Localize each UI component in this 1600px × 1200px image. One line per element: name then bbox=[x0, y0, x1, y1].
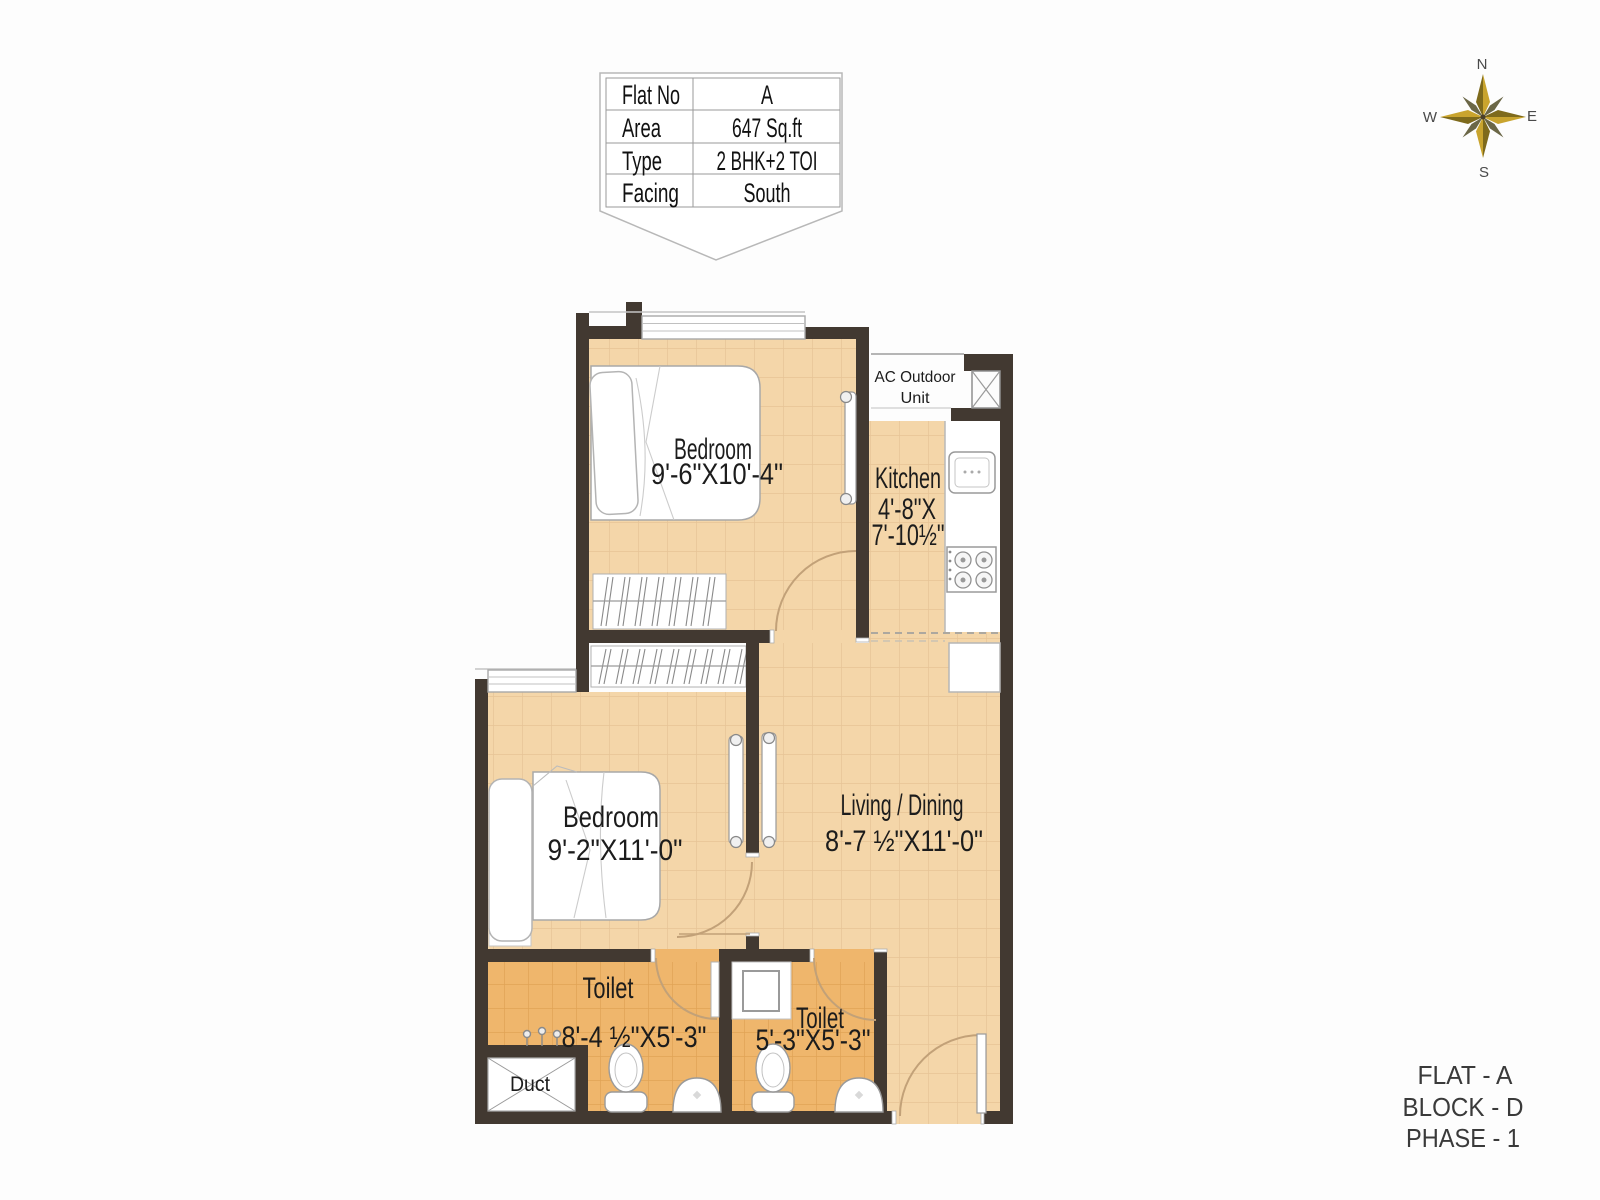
svg-text:Duct: Duct bbox=[510, 1073, 550, 1096]
svg-text:Toilet: Toilet bbox=[583, 972, 634, 1005]
svg-text:A: A bbox=[761, 80, 773, 110]
svg-text:7'-10½": 7'-10½" bbox=[872, 519, 945, 552]
svg-text:Unit: Unit bbox=[901, 390, 931, 407]
svg-text:Type: Type bbox=[622, 146, 662, 176]
svg-text:South: South bbox=[744, 178, 791, 208]
svg-text:2 BHK+2 TOI: 2 BHK+2 TOI bbox=[717, 146, 818, 176]
svg-text:AC Outdoor: AC Outdoor bbox=[875, 369, 957, 386]
svg-text:9'-6"X10'-4": 9'-6"X10'-4" bbox=[651, 458, 783, 491]
svg-text:Living / Dining: Living / Dining bbox=[841, 789, 964, 822]
svg-text:9'-2"X11'-0": 9'-2"X11'-0" bbox=[548, 834, 683, 867]
svg-text:Flat No: Flat No bbox=[622, 80, 680, 110]
svg-text:W: W bbox=[1423, 109, 1438, 126]
svg-text:8'-4 ½"X5'-3": 8'-4 ½"X5'-3" bbox=[562, 1021, 707, 1054]
svg-text:Bedroom: Bedroom bbox=[563, 801, 659, 834]
svg-text:Facing: Facing bbox=[622, 178, 679, 208]
svg-text:E: E bbox=[1527, 108, 1537, 125]
svg-text:647 Sq.ft: 647 Sq.ft bbox=[732, 113, 802, 143]
svg-text:FLAT - A: FLAT - A bbox=[1418, 1060, 1514, 1090]
svg-text:Kitchen: Kitchen bbox=[875, 462, 941, 495]
svg-text:Area: Area bbox=[622, 113, 662, 143]
svg-text:5'-3"X5'-3": 5'-3"X5'-3" bbox=[756, 1024, 871, 1057]
svg-text:PHASE - 1: PHASE - 1 bbox=[1406, 1123, 1520, 1153]
svg-text:8'-7 ½"X11'-0": 8'-7 ½"X11'-0" bbox=[825, 825, 983, 858]
svg-text:N: N bbox=[1477, 56, 1488, 73]
svg-text:S: S bbox=[1479, 164, 1489, 181]
svg-text:BLOCK - D: BLOCK - D bbox=[1403, 1092, 1524, 1122]
